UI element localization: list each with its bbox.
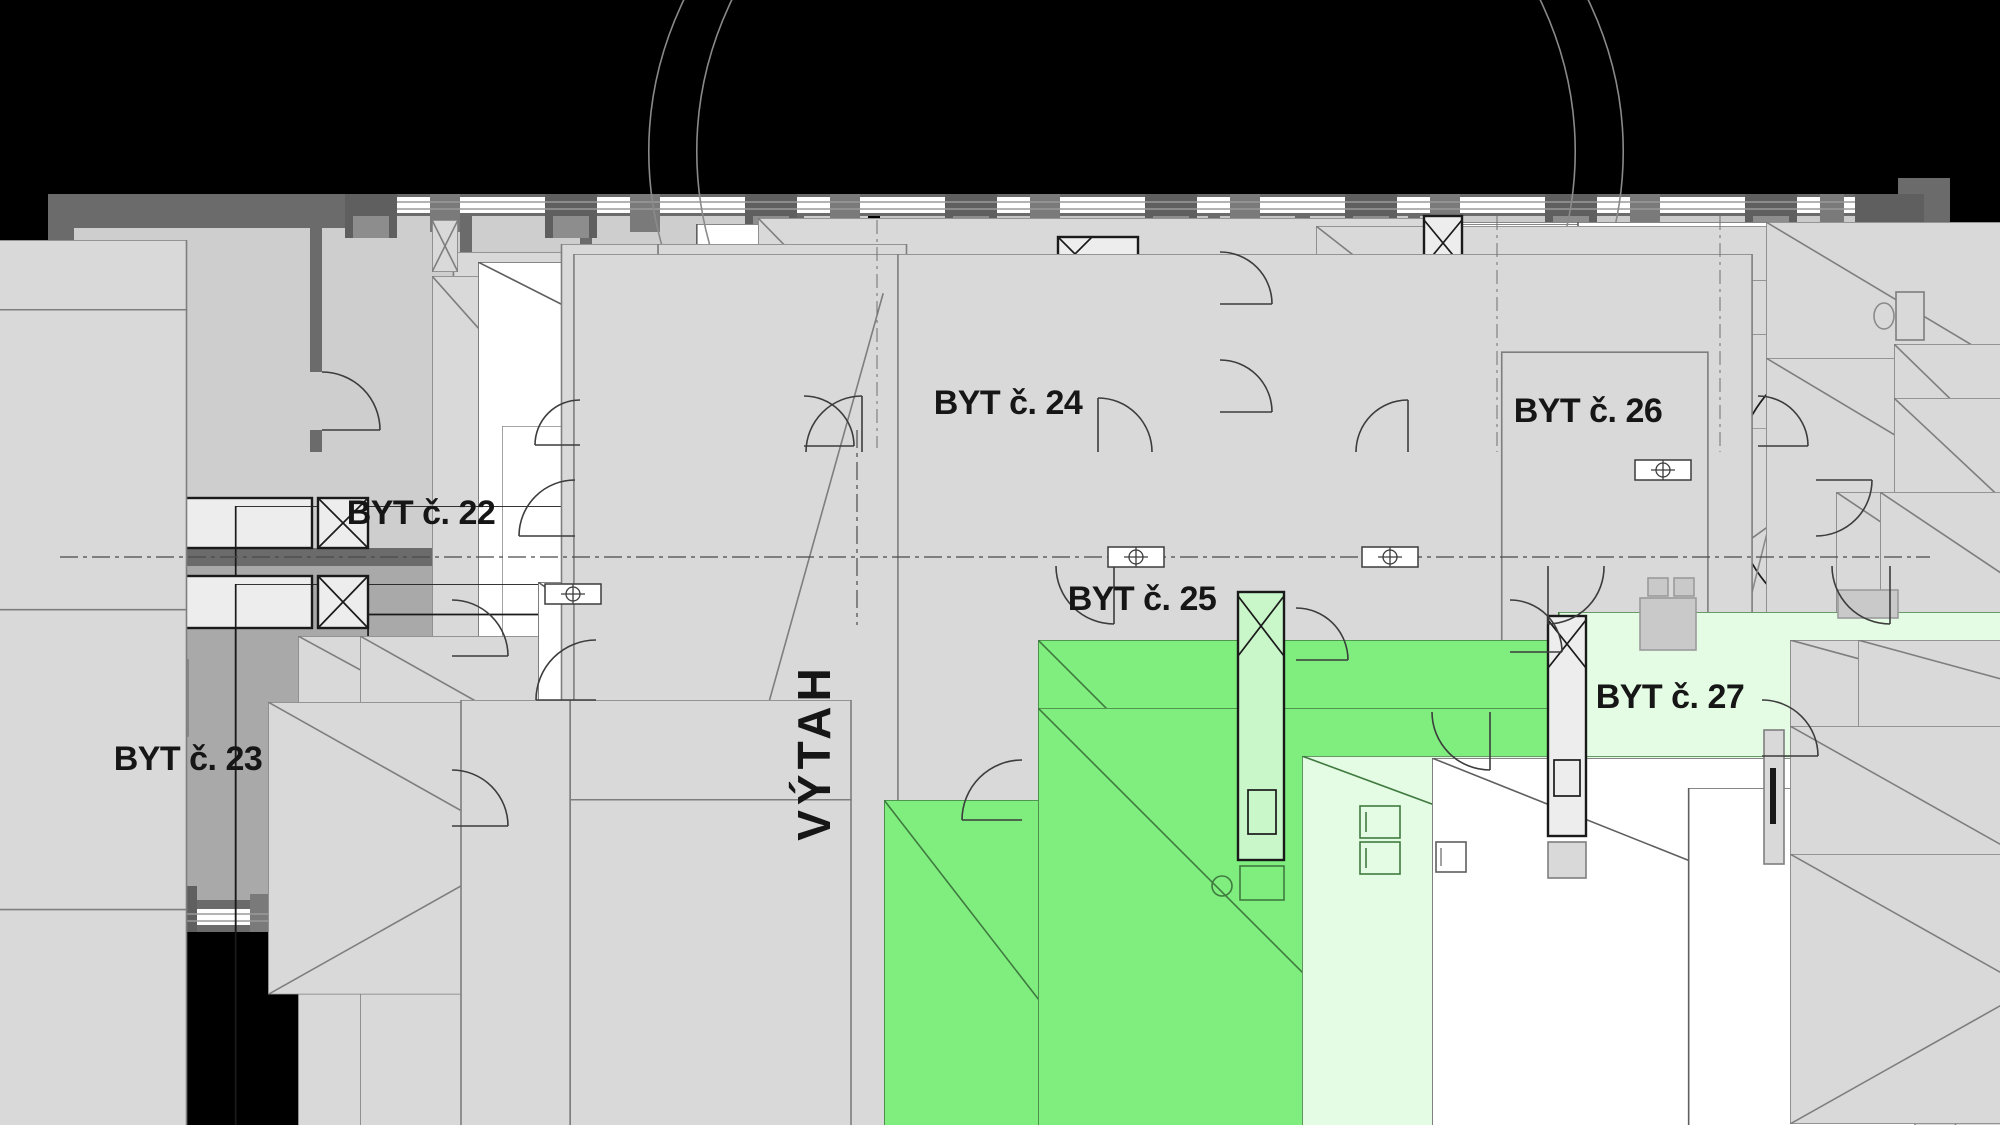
label-byt-27: BYT č. 27 — [1596, 678, 1745, 716]
label-byt-26: BYT č. 26 — [1514, 392, 1663, 430]
floor-plan-stage: BYT č. 22 BYT č. 23 BYT č. 24 BYT č. 25 … — [0, 0, 2000, 1125]
label-byt-25: BYT č. 25 — [1068, 580, 1217, 618]
label-byt-24: BYT č. 24 — [934, 384, 1083, 422]
label-byt-22: BYT č. 22 — [347, 494, 496, 532]
floor-plan-svg: BYT č. 22 BYT č. 23 BYT č. 24 BYT č. 25 … — [0, 0, 2000, 1125]
label-byt-23: BYT č. 23 — [114, 740, 263, 778]
label-elevator: VÝTAH — [788, 663, 840, 841]
